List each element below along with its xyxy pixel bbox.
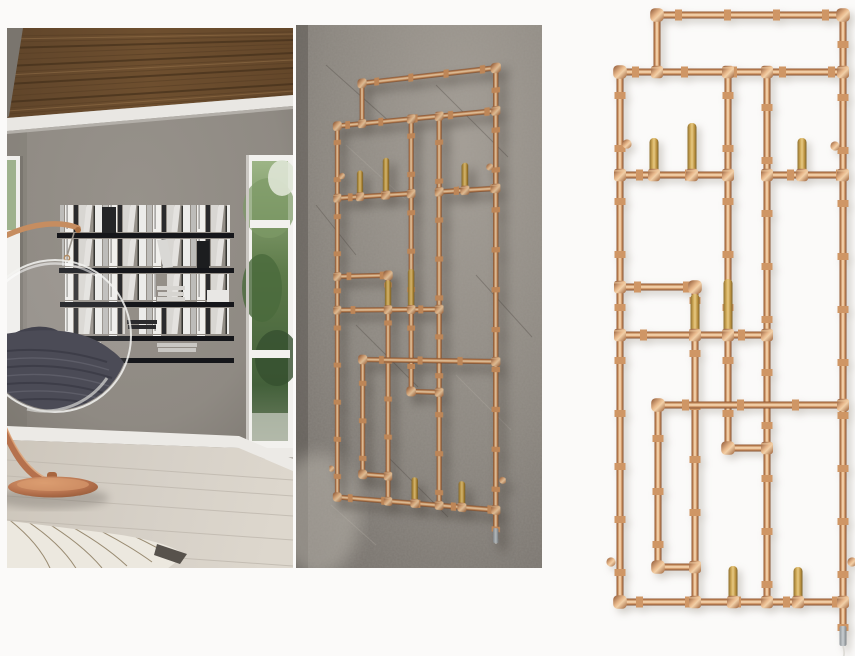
- pipe-rack-perspective: [329, 59, 505, 545]
- window-bar: [250, 220, 290, 228]
- lifestyle-photo-room: [7, 28, 293, 568]
- shelf-board: [57, 233, 234, 238]
- pipe-rack-front: [600, 0, 855, 656]
- product-render-white: [543, 0, 855, 656]
- window-bar: [250, 350, 290, 358]
- window-right: [242, 155, 293, 459]
- books-row: [60, 205, 230, 233]
- product-image-collage: [0, 0, 855, 656]
- product-photo-wall: [296, 25, 542, 568]
